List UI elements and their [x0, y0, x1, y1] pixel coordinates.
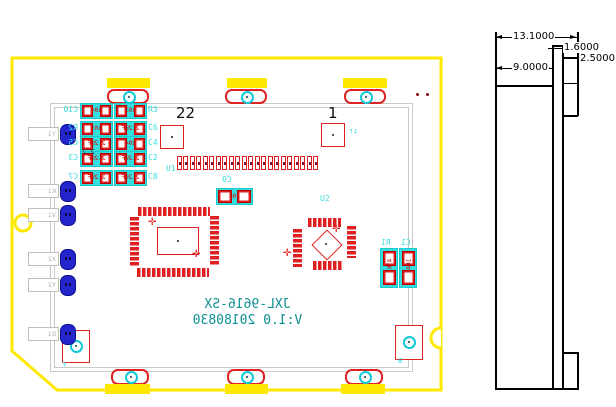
bottom-tab-3 [341, 384, 385, 394]
u2-pads-right [347, 226, 356, 258]
edge-notch [431, 328, 441, 348]
fiducial-left[interactable] [160, 125, 184, 149]
cap-c2[interactable]: 2.2UF [114, 151, 147, 167]
top-edge-pad-3[interactable] [344, 89, 386, 104]
hole-pad-6[interactable] [60, 324, 76, 345]
ref-r1: R1 [381, 239, 391, 247]
qfp-pads-bottom [137, 268, 209, 277]
u1-pin [261, 156, 266, 170]
hole-pad-4[interactable] [60, 249, 76, 270]
target-icon [403, 336, 416, 349]
qfp-pads-right [210, 216, 219, 266]
hole-pad-5[interactable] [60, 275, 76, 296]
dim25-line [566, 58, 578, 59]
edge-label: D1 [48, 328, 56, 340]
u1-pin [287, 156, 292, 170]
ref-c4: C4 [148, 139, 158, 147]
bottom-edge [495, 388, 579, 390]
ref-c7: C7 [56, 173, 78, 181]
qfp-chip[interactable]: ✛ ✛ [128, 205, 223, 280]
pcb-bar-right [562, 45, 564, 389]
dim-pcb-thickness[interactable]: 1.6000 [563, 42, 600, 53]
u1-pin [183, 156, 188, 170]
bottom-edge-pad-3[interactable] [345, 369, 383, 385]
u1-pin [255, 156, 260, 170]
target-icon [359, 371, 372, 384]
tp-mark-bottom-left: F [62, 362, 66, 369]
mount-pad-bottom-right[interactable] [395, 325, 423, 360]
ref-c1: C1 [401, 239, 411, 247]
u1-pin [209, 156, 214, 170]
edge-label-box-4: X2 [28, 252, 59, 266]
target-icon [125, 371, 138, 384]
u1-pin [248, 156, 253, 170]
top-edge-pad-1[interactable] [107, 89, 149, 104]
qfp-pads-top [138, 207, 210, 216]
cad-canvas[interactable]: F B Y1 K1 V1 X2 Y2 D1 C10 R2 C5 C3 C7 R3… [0, 0, 616, 407]
target-icon [241, 371, 254, 384]
cap-r3[interactable]: 103 [114, 103, 147, 119]
ref-c2: C2 [148, 154, 158, 162]
u1-pin [242, 156, 247, 170]
u1-pin [300, 156, 305, 170]
conn-mid [562, 83, 578, 84]
ref-u1: U1 [166, 165, 176, 173]
polarity-cross-icon: ✛ [192, 250, 200, 260]
cap-c1[interactable]: 104 [399, 248, 417, 288]
u1-pin [177, 156, 182, 170]
u2-center-dot [325, 243, 327, 245]
top-tab-1 [107, 78, 150, 88]
dim16-line [548, 48, 562, 49]
ref-c8: C8 [148, 173, 158, 181]
u2-pads-bottom [313, 261, 343, 270]
bottom-edge-pad-1[interactable] [111, 369, 149, 385]
arrow-left-icon [496, 35, 502, 39]
cap-c7[interactable]: 2.2UF [80, 170, 113, 186]
dim-overall-width[interactable]: 13.1000 [512, 31, 555, 42]
u1-pin [196, 156, 201, 170]
u1-pin [203, 156, 208, 170]
edge-label-box-1: Y1 [28, 127, 59, 141]
board-title-block[interactable]: JXL-9616-SX V:1.0 20180830 [175, 297, 320, 329]
u2-pads-left [293, 229, 302, 267]
overlay-value: 2.2 [82, 148, 95, 156]
body-top-edge [495, 85, 553, 87]
edge-label-box-3: V1 [28, 208, 59, 222]
ref-c6: C6 [148, 124, 158, 132]
cap-r2[interactable]: 103 [80, 121, 113, 137]
bottom-tab-1 [105, 384, 150, 394]
ref-r2: R2 [56, 124, 78, 132]
edge-label: V1 [48, 209, 56, 221]
u1-pin [281, 156, 286, 170]
u1-pin [268, 156, 273, 170]
u1-pin [307, 156, 312, 170]
cap-c10[interactable]: 104 [80, 103, 113, 119]
u1-pin [222, 156, 227, 170]
tp-mark-bottom-right: B [398, 358, 402, 365]
bottom-edge-pad-2[interactable] [227, 369, 265, 385]
dim-body-width[interactable]: 9.0000 [512, 62, 549, 73]
arrow-left-icon [496, 66, 502, 70]
target-icon [360, 91, 373, 104]
target-icon [241, 91, 254, 104]
ref-c3: C3 [56, 154, 78, 162]
ref-c5: C5 [56, 139, 78, 147]
arrow-right-icon [570, 35, 576, 39]
u1-pin [294, 156, 299, 170]
u2-chip[interactable]: ✛ ✛ [291, 216, 359, 272]
edge-label: Y1 [48, 128, 56, 140]
edge-label: K1 [48, 185, 56, 197]
u1-pin [190, 156, 195, 170]
foot-top [562, 352, 578, 354]
edge-label: Y2 [48, 279, 56, 291]
edge-label-box-2: K1 [28, 184, 59, 198]
board-title-line2: V:1.0 20180830 [175, 313, 320, 329]
polarity-cross-icon: ✛ [148, 218, 156, 228]
u1-pin [216, 156, 221, 170]
top-edge-pad-2[interactable] [225, 89, 267, 104]
cap-c9[interactable]: 104 [216, 188, 253, 205]
fiducial-mark: ır [349, 128, 357, 135]
top-tab-3 [343, 78, 387, 88]
dim-connector-depth[interactable]: 2.5000 [579, 53, 616, 64]
pcb-bar-top [552, 45, 563, 47]
edge-label-box-6: D1 [28, 327, 59, 341]
polarity-cross-icon: ✛ [283, 249, 291, 259]
fiducial-right[interactable] [321, 123, 345, 147]
hole-pad-3[interactable] [60, 205, 76, 226]
u1-pin-row[interactable] [177, 156, 318, 170]
u1-pin [235, 156, 240, 170]
ref-u2: U2 [320, 195, 330, 203]
conn-bottom [562, 115, 578, 117]
edge-label: X2 [48, 253, 56, 265]
hole-pad-2[interactable] [60, 181, 76, 202]
ref-r3: R3 [148, 106, 158, 114]
pcb-bar-left [552, 45, 554, 389]
top-tab-2 [227, 78, 267, 88]
ref-c9: C9 [222, 176, 232, 184]
u1-pin [313, 156, 318, 170]
foot-right [577, 352, 579, 389]
bottom-tab-2 [225, 384, 268, 394]
pin-number-22: 22 [176, 106, 195, 121]
polarity-cross-icon: ✛ [332, 225, 340, 235]
via-1 [416, 93, 419, 96]
qfp-pads-left [130, 217, 139, 267]
u1-pin [229, 156, 234, 170]
res-r1[interactable]: 47K [380, 248, 398, 288]
edge-label-box-5: Y2 [28, 278, 59, 292]
cap-c6[interactable]: 2.2UF [114, 121, 147, 137]
ref-c10: C10 [56, 106, 78, 114]
cap-c8[interactable]: 2.2UF [114, 170, 147, 186]
via-2 [426, 93, 429, 96]
u1-pin [274, 156, 279, 170]
pin-number-1: 1 [328, 106, 338, 121]
cap-c4[interactable]: 104 [114, 136, 147, 152]
board-title-line1: JXL-9616-SX [175, 297, 320, 313]
